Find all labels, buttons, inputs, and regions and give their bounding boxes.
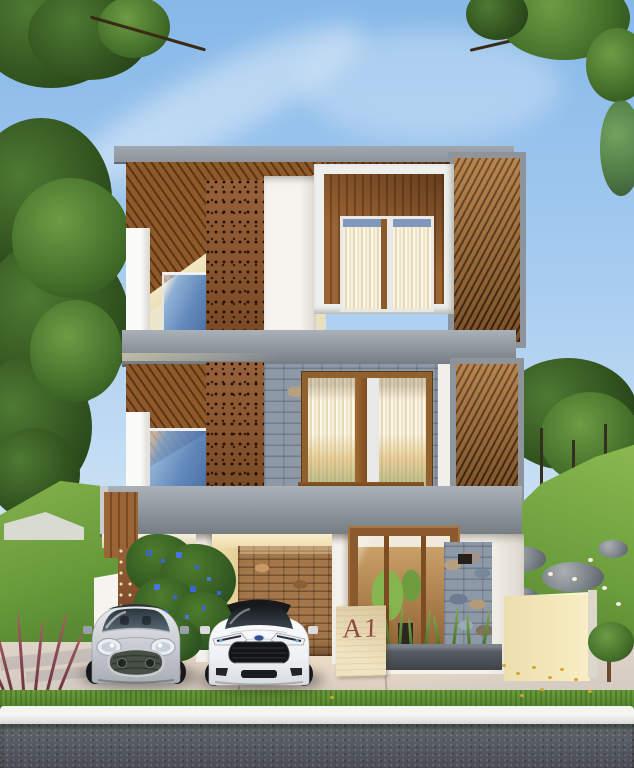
red-blade (17, 612, 25, 690)
headrest (142, 616, 151, 625)
red-blade (34, 620, 44, 690)
wood-slat-panel-top-right (448, 152, 526, 348)
side-mirror (308, 626, 318, 634)
side-mirror (180, 626, 189, 634)
side-mirror (200, 626, 210, 634)
fallen-leaf (516, 672, 520, 675)
window-mullion (355, 378, 367, 490)
headlight-glint (295, 639, 298, 642)
grass-blade (398, 608, 404, 648)
fallen-leaf (520, 694, 524, 697)
blue-flowers (148, 552, 150, 554)
fallen-leaf (548, 676, 552, 679)
headlight-inner (102, 642, 117, 652)
fallen-leaf (540, 688, 544, 691)
grass-blade (466, 614, 471, 648)
small-tree-canopy (588, 622, 634, 662)
headlight-glint (158, 643, 162, 647)
ornamental-red-grass (0, 590, 76, 690)
grass-blade (424, 610, 432, 648)
headlight-glint (219, 639, 222, 642)
asphalt-road (0, 724, 634, 768)
balcony-glass-mid-floor (148, 428, 210, 493)
curtain-pane (393, 219, 431, 309)
bird (548, 572, 553, 576)
headlight-inner (156, 642, 171, 652)
architectural-render-scene: A1 (0, 0, 634, 768)
balcony-glass-top-floor (162, 272, 210, 337)
car-white-sedan (200, 582, 318, 688)
fallen-leaf (574, 678, 578, 681)
wood-slat-panel-mid-right (450, 358, 524, 502)
headrest (120, 616, 129, 625)
house-number-text: A1 (335, 612, 386, 644)
top-floor-window (340, 216, 434, 312)
foliage-blob (600, 100, 634, 196)
perforated-corten-panel-mid (206, 362, 264, 488)
fog-slot (290, 668, 302, 676)
window-mullion (381, 219, 387, 309)
bird (588, 558, 593, 562)
side-mirror (83, 626, 92, 634)
grass-blade (482, 610, 491, 648)
white-wall-top-floor (264, 176, 316, 332)
fallen-leaf (502, 664, 506, 667)
interior-glow (240, 546, 334, 554)
foliage-blob (12, 178, 130, 298)
corner-fascia-white (126, 412, 150, 492)
bird (616, 602, 621, 606)
fog-light (118, 659, 127, 668)
mid-floor-window (302, 372, 432, 496)
red-blade (0, 628, 13, 691)
fallen-leaf (330, 696, 334, 699)
planter-zone (380, 606, 502, 674)
fallen-leaf (532, 666, 536, 669)
lower-intake (241, 670, 277, 678)
perforated-corten-panel-top (206, 180, 264, 332)
planter-box (380, 644, 502, 670)
fallen-leaf (588, 690, 592, 693)
foliage-blob (30, 300, 122, 402)
house-number-sign: A1 (336, 605, 386, 676)
carport-slab (100, 486, 522, 537)
rock (598, 540, 628, 558)
car-silver-hatchback (82, 584, 190, 686)
fog-light (146, 659, 155, 668)
fog-slot (216, 668, 228, 676)
brand-badge (254, 635, 264, 641)
bird (602, 586, 607, 590)
corner-fascia-white (126, 228, 150, 332)
bird (572, 577, 577, 581)
curtain-pane (343, 219, 381, 309)
headlight-glint (110, 643, 114, 647)
curtain-pane (308, 378, 355, 490)
wall-vent (458, 554, 472, 564)
curtain-pane (379, 378, 426, 490)
fallen-leaf (560, 668, 564, 671)
grass-blade (452, 608, 459, 648)
compound-wall-right (504, 592, 590, 681)
